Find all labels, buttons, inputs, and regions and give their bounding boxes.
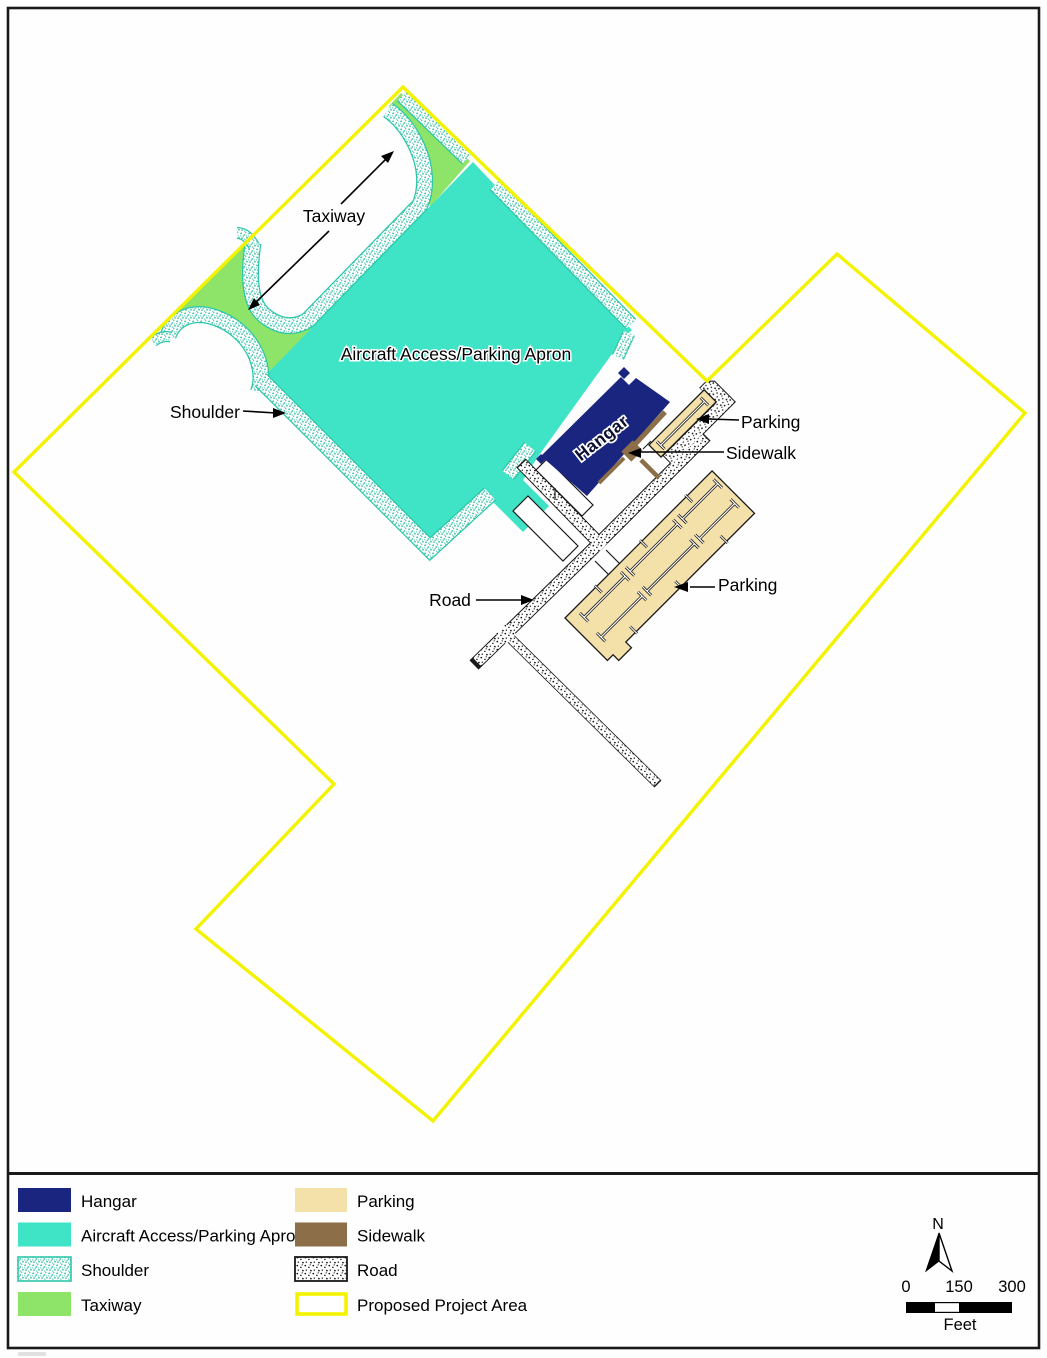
svg-text:Shoulder: Shoulder	[170, 402, 240, 422]
svg-text:Sidewalk: Sidewalk	[357, 1227, 426, 1246]
svg-text:150: 150	[945, 1278, 973, 1296]
svg-text:Taxiway: Taxiway	[303, 206, 365, 226]
svg-text:Parking: Parking	[741, 412, 800, 432]
svg-text:0: 0	[901, 1278, 910, 1296]
svg-text:Sidewalk: Sidewalk	[726, 443, 796, 463]
svg-text:Feet: Feet	[943, 1316, 976, 1334]
svg-text:Road: Road	[429, 590, 471, 610]
svg-text:Taxiway: Taxiway	[81, 1296, 142, 1315]
svg-text:Road: Road	[357, 1261, 398, 1280]
svg-text:Hangar: Hangar	[81, 1192, 137, 1211]
svg-text:Parking: Parking	[357, 1192, 415, 1211]
svg-text:Aircraft Access/Parking Apron: Aircraft Access/Parking Apron	[81, 1227, 305, 1246]
svg-text:Shoulder: Shoulder	[81, 1261, 149, 1280]
svg-text:300: 300	[998, 1278, 1026, 1296]
svg-text:Aircraft Access/Parking Apron: Aircraft Access/Parking Apron	[341, 344, 572, 364]
svg-text:Proposed Project Area: Proposed Project Area	[357, 1296, 528, 1315]
svg-text:N: N	[932, 1216, 944, 1233]
svg-text:Parking: Parking	[718, 575, 777, 595]
